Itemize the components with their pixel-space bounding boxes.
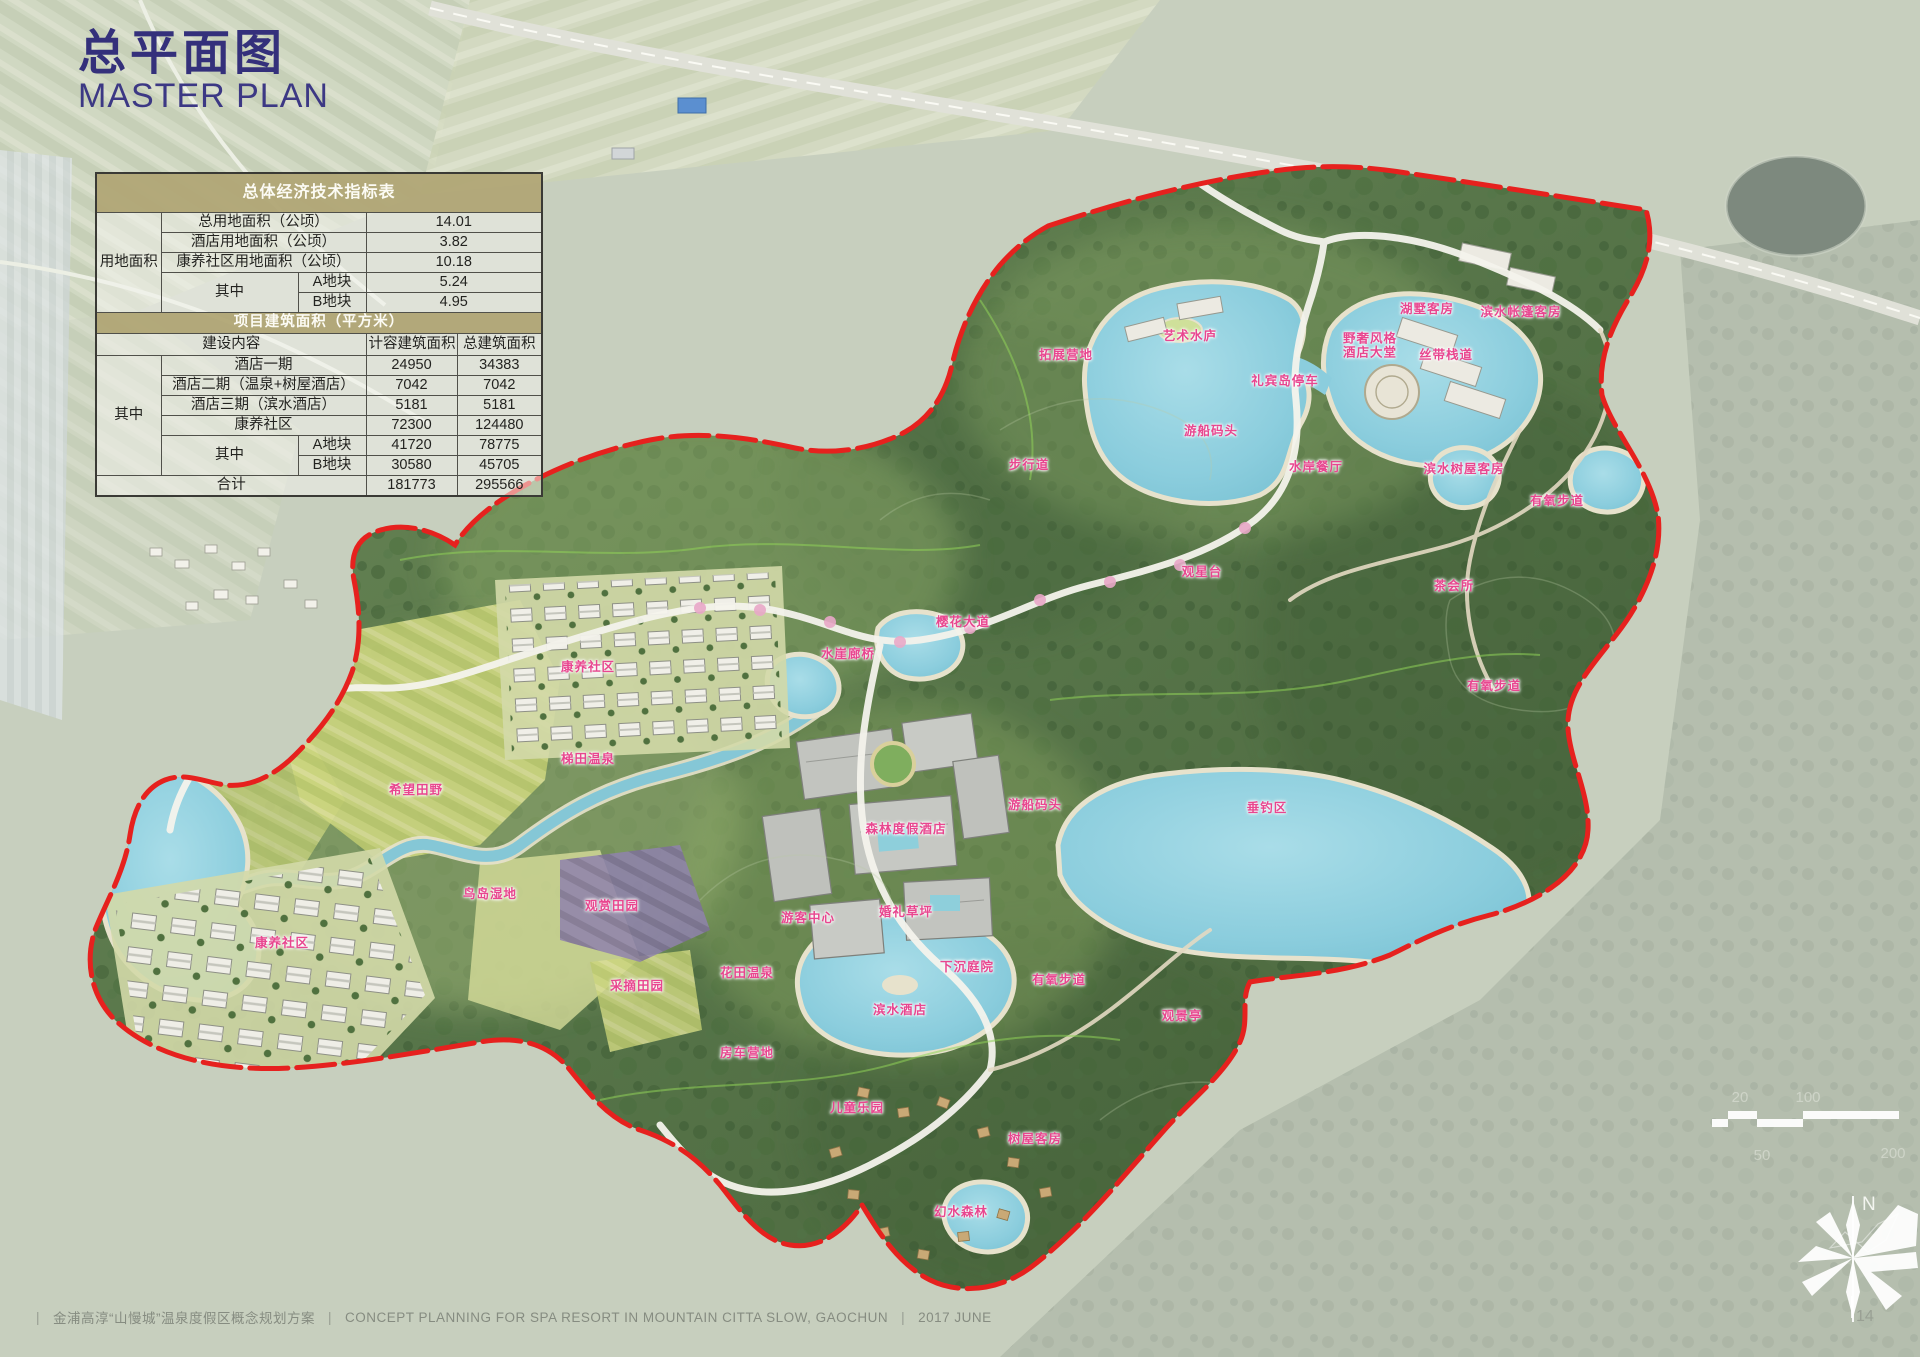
row-far: 24950 (366, 356, 457, 376)
map-label: 希望田野 (389, 783, 443, 797)
master-plan-page: 20 100 50 200 N 总平面图 MASTER PLAN 总体经济技术指… (0, 0, 1920, 1357)
footer-separator: | (901, 1310, 905, 1325)
table-title-2: 项目建筑面积（平方米） (96, 313, 542, 334)
map-label: 滨水酒店 (873, 1003, 927, 1017)
map-label: 下沉庭院 (940, 960, 994, 974)
svg-text:50: 50 (1754, 1147, 1771, 1164)
footer-project-title-en: CONCEPT PLANNING FOR SPA RESORT IN MOUNT… (345, 1310, 888, 1325)
row-label: A地块 (298, 436, 366, 456)
row-gfa: 34383 (457, 356, 542, 376)
total-far: 181773 (366, 476, 457, 497)
footer-project-title-zh: 金浦高淳“山慢城”温泉度假区概念规划方案 (53, 1307, 315, 1327)
svg-text:100: 100 (1795, 1089, 1820, 1106)
map-label: 儿童乐园 (830, 1101, 884, 1115)
map-label: 森林度假酒店 (865, 822, 946, 836)
total-gfa: 295566 (457, 476, 542, 497)
map-label: 水岸餐厅 (1289, 460, 1343, 474)
row-label: 酒店二期（温泉+树屋酒店） (161, 376, 366, 396)
map-label: 有氧步道 (1032, 973, 1086, 987)
map-label: 礼宾岛停车 (1251, 374, 1319, 388)
map-label: 丝带栈道 (1419, 348, 1473, 362)
map-label: 幻水森林 (934, 1205, 988, 1219)
footer-date: 2017 JUNE (918, 1310, 992, 1325)
title-chinese: 总平面图 (78, 30, 329, 79)
row-gfa: 45705 (457, 456, 542, 476)
map-label: 茶会所 (1434, 579, 1475, 593)
row-value: 14.01 (366, 213, 542, 233)
row-label: 酒店一期 (161, 356, 366, 376)
row-far: 30580 (366, 456, 457, 476)
footer-separator: | (328, 1310, 332, 1325)
row-gfa: 5181 (457, 396, 542, 416)
map-label: 水崖廊桥 (821, 647, 875, 661)
page-title: 总平面图 MASTER PLAN (78, 30, 329, 114)
row-gfa: 124480 (457, 416, 542, 436)
map-label: 樱花大道 (936, 615, 990, 629)
map-label: 观星台 (1182, 565, 1223, 579)
map-label: 滨水树屋客房 (1423, 462, 1504, 476)
group-label: 其中 (96, 356, 161, 476)
row-far: 5181 (366, 396, 457, 416)
map-label: 有氧步道 (1530, 494, 1584, 508)
map-label: 游船码头 (1008, 798, 1062, 812)
page-number-tick (1851, 1296, 1853, 1318)
row-label: A地块 (298, 273, 366, 293)
map-label: 观赏田园 (585, 899, 639, 913)
col-header: 总建筑面积 (457, 334, 542, 356)
row-label: 康养社区 (161, 416, 366, 436)
map-label: 游船码头 (1184, 424, 1238, 438)
total-label: 合计 (96, 476, 366, 497)
row-label: 总用地面积（公顷） (161, 213, 366, 233)
row-far: 7042 (366, 376, 457, 396)
map-label: 房车营地 (720, 1046, 774, 1060)
map-label: 梯田温泉 (561, 752, 615, 766)
map-label: 拓展营地 (1039, 348, 1093, 362)
map-label: 有氧步道 (1467, 679, 1521, 693)
map-label: 观景亭 (1162, 1009, 1203, 1023)
footer-separator: | (36, 1310, 40, 1325)
economic-indicator-table: 总体经济技术指标表 用地面积 总用地面积（公顷） 14.01 酒店用地面积（公顷… (95, 172, 543, 497)
footer: | 金浦高淳“山慢城”温泉度假区概念规划方案 | CONCEPT PLANNIN… (36, 1307, 992, 1327)
row-label: 酒店用地面积（公顷） (161, 233, 366, 253)
map-label: 康养社区 (255, 936, 309, 950)
map-label: 树屋客房 (1008, 1132, 1062, 1146)
map-label: 艺术水庐 (1163, 329, 1217, 343)
col-header: 计容建筑面积 (366, 334, 457, 356)
row-far: 72300 (366, 416, 457, 436)
row-value: 5.24 (366, 273, 542, 293)
land-group-label: 用地面积 (96, 213, 161, 313)
map-label: 步行道 (1009, 458, 1050, 472)
row-value: 3.82 (366, 233, 542, 253)
table-title-1: 总体经济技术指标表 (96, 173, 542, 213)
row-label: B地块 (298, 456, 366, 476)
svg-text:20: 20 (1732, 1089, 1749, 1106)
map-label: 野奢风格 酒店大堂 (1343, 332, 1397, 361)
map-label: 垂钓区 (1247, 801, 1288, 815)
col-header: 建设内容 (96, 334, 366, 356)
row-gfa: 7042 (457, 376, 542, 396)
row-gfa: 78775 (457, 436, 542, 456)
map-label: 滨水帐篷客房 (1480, 305, 1561, 319)
map-label: 采摘田园 (610, 979, 664, 993)
map-label: 婚礼草坪 (879, 905, 933, 919)
row-label: 康养社区用地面积（公顷） (161, 253, 366, 273)
row-label: 酒店三期（滨水酒店） (161, 396, 366, 416)
svg-text:200: 200 (1880, 1145, 1905, 1162)
sub-group-label: 其中 (161, 273, 298, 313)
map-label: 花田温泉 (720, 966, 774, 980)
map-label: 游客中心 (781, 911, 835, 925)
map-label: 康养社区 (561, 660, 615, 674)
row-value: 10.18 (366, 253, 542, 273)
map-label: 鸟岛湿地 (463, 887, 517, 901)
row-far: 41720 (366, 436, 457, 456)
map-label: 湖墅客房 (1400, 302, 1454, 316)
row-value: 4.95 (366, 293, 542, 313)
title-english: MASTER PLAN (78, 79, 329, 114)
sub-group-label: 其中 (161, 436, 298, 476)
page-number: 14 (1856, 1308, 1874, 1326)
compass-n-label: N (1862, 1194, 1876, 1215)
row-label: B地块 (298, 293, 366, 313)
